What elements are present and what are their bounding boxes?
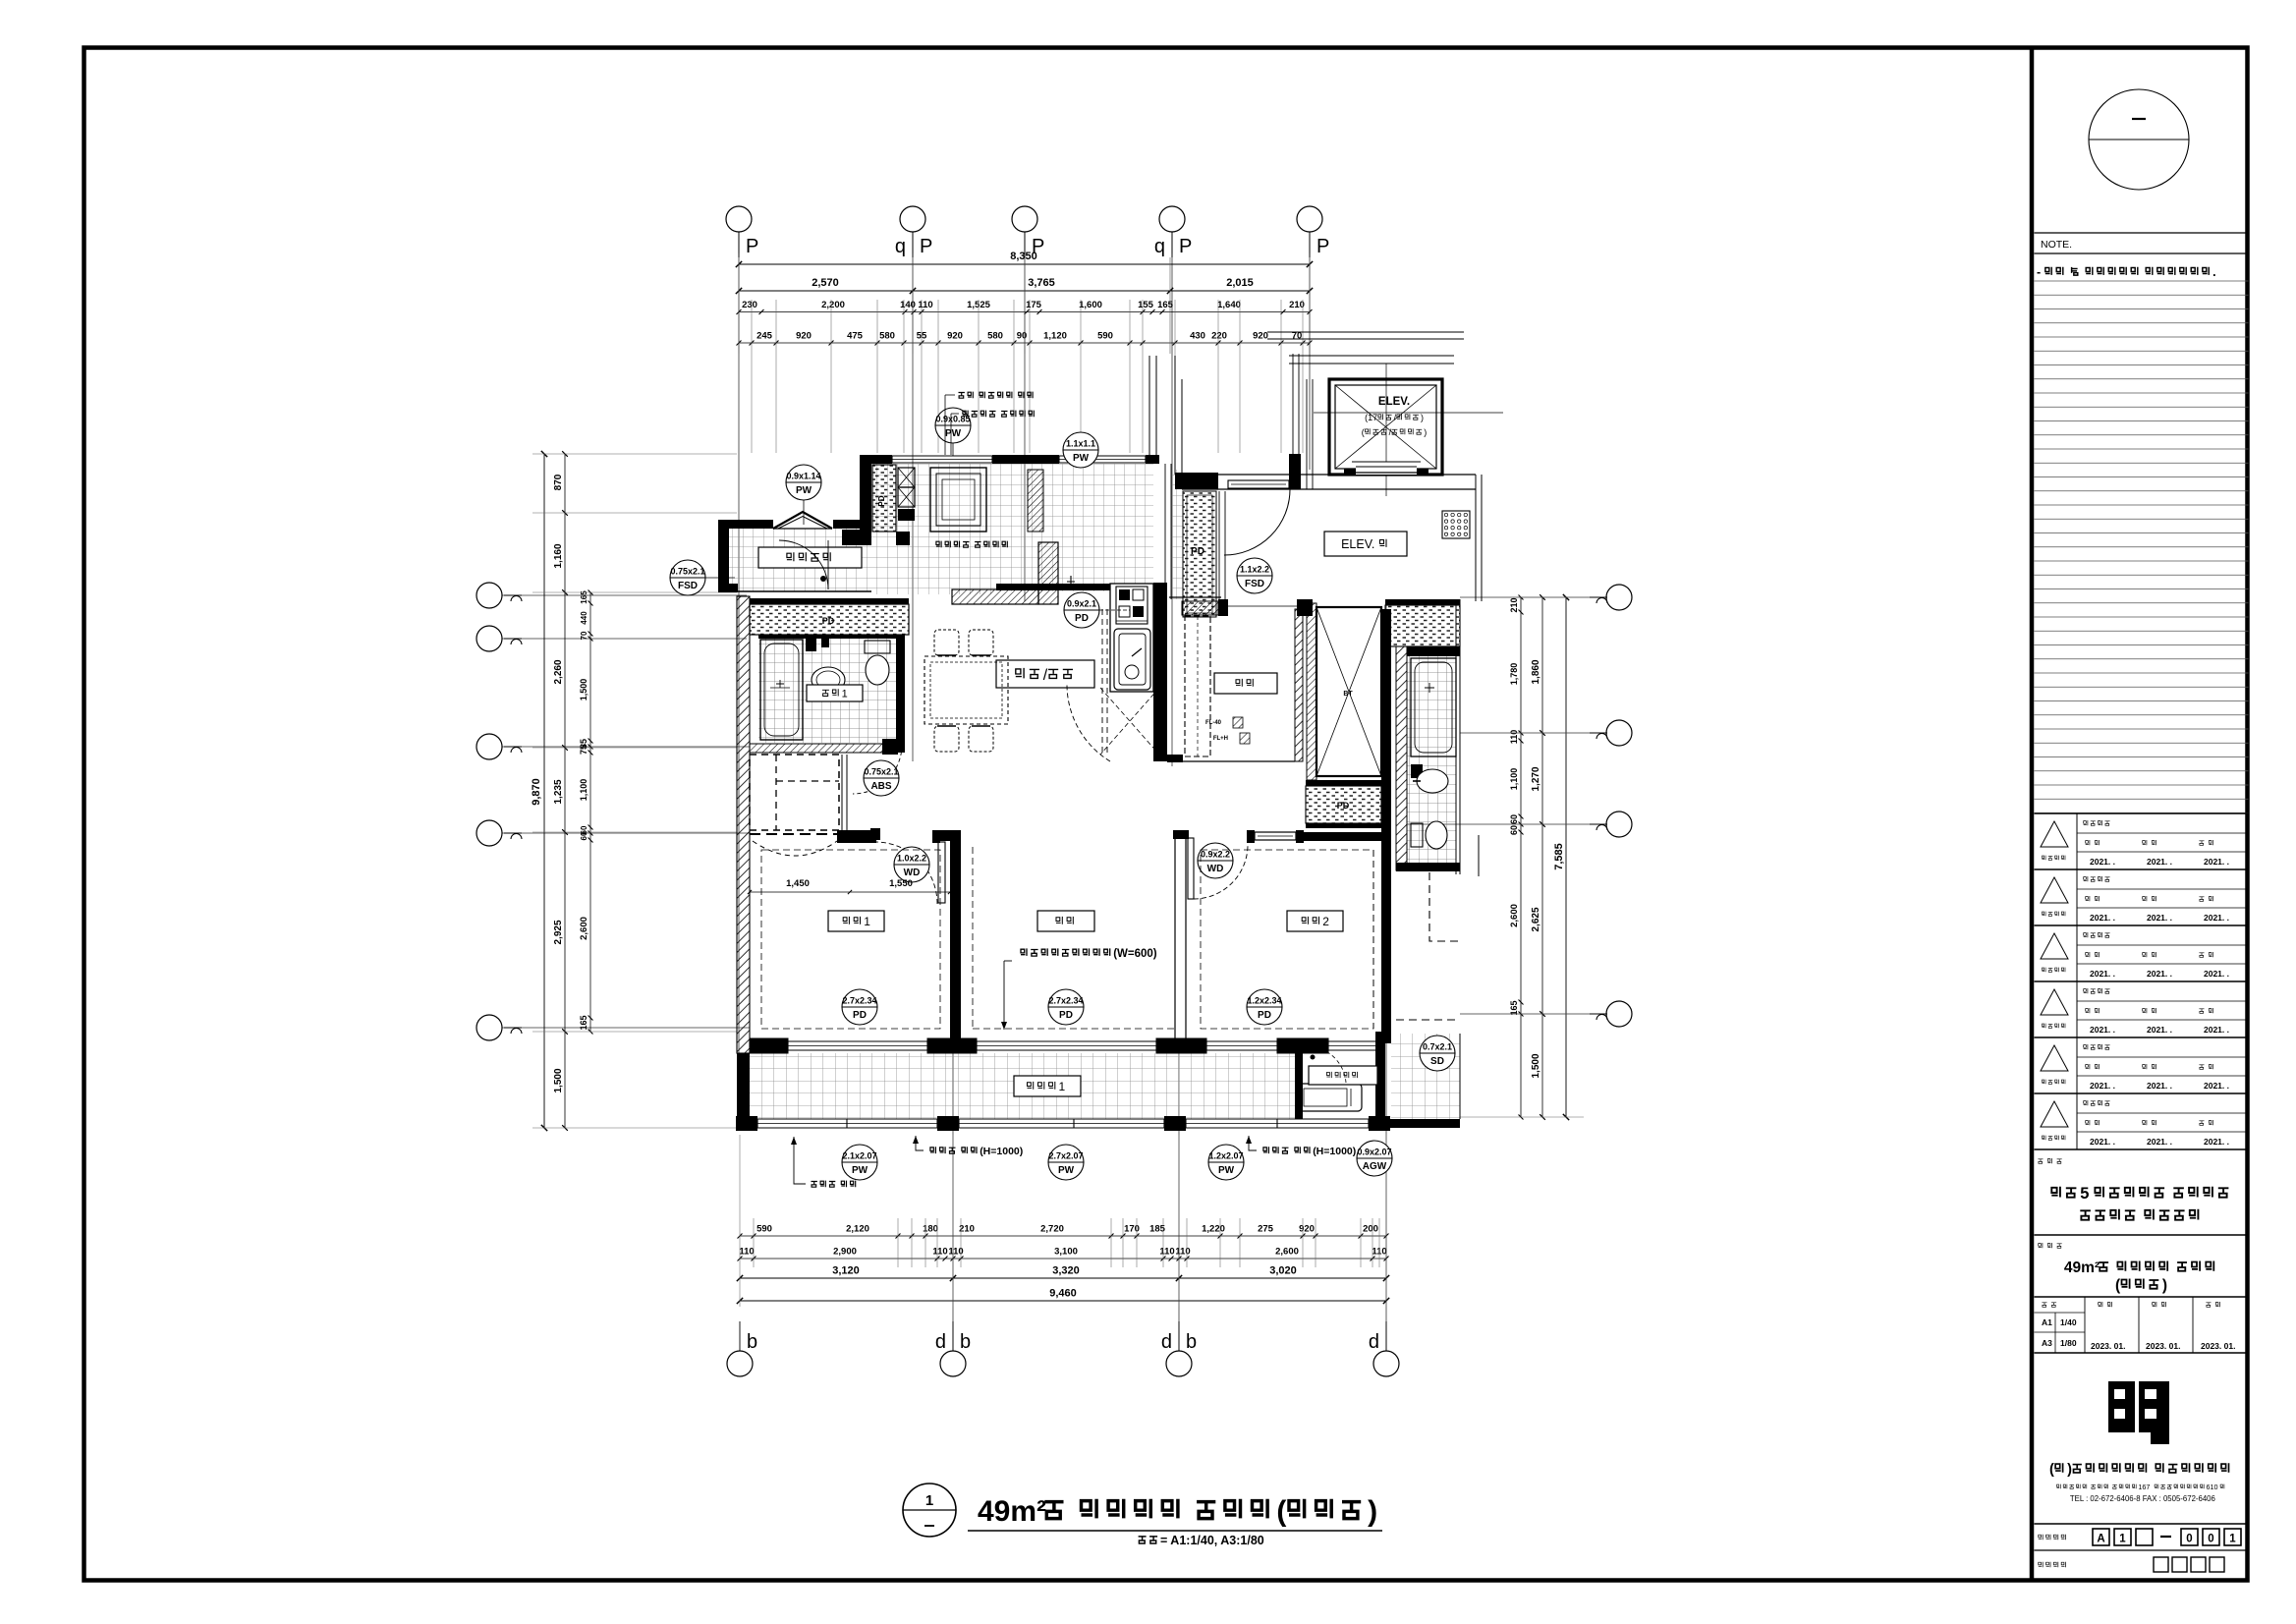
svg-text:920: 920 bbox=[796, 331, 812, 342]
svg-text:P: P bbox=[1179, 236, 1192, 257]
svg-text:0.9x2.2: 0.9x2.2 bbox=[1201, 850, 1230, 860]
svg-text:FSD: FSD bbox=[1245, 579, 1264, 589]
svg-text:(H=1000): (H=1000) bbox=[980, 1146, 1023, 1157]
svg-text:1,235: 1,235 bbox=[553, 779, 564, 804]
svg-text:2021. .: 2021. . bbox=[2204, 1137, 2229, 1147]
svg-text:2.7x2.34: 2.7x2.34 bbox=[1048, 996, 1083, 1006]
svg-text:2,600: 2,600 bbox=[1509, 904, 1520, 927]
svg-text:PW: PW bbox=[945, 428, 962, 439]
svg-text:170: 170 bbox=[1124, 1224, 1140, 1235]
svg-text:1,100: 1,100 bbox=[579, 779, 588, 802]
svg-text:430: 430 bbox=[1190, 331, 1205, 342]
svg-text:3,320: 3,320 bbox=[1052, 1265, 1080, 1277]
svg-text:): ) bbox=[1424, 427, 1427, 437]
svg-text:1,450: 1,450 bbox=[786, 878, 810, 889]
svg-text:FL+H: FL+H bbox=[1213, 736, 1228, 742]
svg-text:1: 1 bbox=[842, 688, 848, 700]
svg-text:1.1x2.2: 1.1x2.2 bbox=[1240, 565, 1269, 575]
svg-text:165: 165 bbox=[1509, 1000, 1519, 1015]
svg-text:1,270: 1,270 bbox=[1531, 766, 1541, 791]
svg-text:1/40: 1/40 bbox=[2060, 1317, 2077, 1327]
svg-text:(: ( bbox=[1362, 427, 1365, 437]
svg-text:3,120: 3,120 bbox=[832, 1265, 860, 1277]
svg-text:2,600: 2,600 bbox=[579, 917, 589, 940]
svg-text:2.7x2.07: 2.7x2.07 bbox=[1048, 1151, 1083, 1161]
svg-text:1.0x2.2: 1.0x2.2 bbox=[897, 854, 926, 864]
svg-text:70: 70 bbox=[580, 631, 588, 640]
svg-text:110: 110 bbox=[1159, 1247, 1174, 1258]
svg-text:2021. .: 2021. . bbox=[2204, 913, 2229, 923]
svg-text:PD: PD bbox=[1337, 801, 1350, 811]
svg-text:= A1:1/40, A3:1/80: = A1:1/40, A3:1/80 bbox=[1160, 1534, 1264, 1547]
svg-text:d: d bbox=[1369, 1331, 1379, 1353]
svg-text:q: q bbox=[1154, 236, 1165, 257]
svg-text:ELEV.: ELEV. bbox=[1341, 537, 1374, 551]
svg-text:WD: WD bbox=[904, 868, 921, 878]
svg-text:2021. .: 2021. . bbox=[2090, 913, 2115, 923]
svg-text:2,900: 2,900 bbox=[833, 1247, 857, 1258]
svg-text:(17: (17 bbox=[1365, 413, 1377, 422]
svg-text:2021. .: 2021. . bbox=[2090, 969, 2115, 979]
svg-text:90: 90 bbox=[1017, 331, 1028, 342]
svg-text:0: 0 bbox=[2186, 1534, 2192, 1545]
svg-text:1,600: 1,600 bbox=[1079, 300, 1102, 310]
svg-text:9,460: 9,460 bbox=[1049, 1288, 1077, 1300]
svg-text:WD: WD bbox=[1207, 864, 1224, 874]
svg-text:1.2x2.34: 1.2x2.34 bbox=[1247, 996, 1281, 1006]
svg-text:PW: PW bbox=[1058, 1165, 1075, 1176]
svg-text:2,570: 2,570 bbox=[812, 277, 839, 289]
svg-text:1.1x1.1: 1.1x1.1 bbox=[1066, 439, 1095, 449]
svg-text:590: 590 bbox=[1097, 331, 1113, 342]
svg-text:1: 1 bbox=[2119, 1534, 2126, 1545]
svg-text:PW: PW bbox=[1073, 453, 1090, 464]
svg-text:-: - bbox=[2037, 265, 2041, 279]
svg-text:440: 440 bbox=[580, 611, 588, 625]
svg-text:PD: PD bbox=[1191, 546, 1204, 557]
svg-text:3,020: 3,020 bbox=[1269, 1265, 1297, 1277]
svg-text:55: 55 bbox=[917, 331, 927, 342]
svg-text:2023. 01.: 2023. 01. bbox=[2201, 1341, 2235, 1351]
svg-text:1/80: 1/80 bbox=[2060, 1338, 2077, 1348]
svg-text:2021. .: 2021. . bbox=[2090, 857, 2115, 867]
svg-text:BT: BT bbox=[1343, 691, 1353, 698]
svg-text:b: b bbox=[1186, 1331, 1197, 1353]
svg-text:): ) bbox=[2067, 1462, 2072, 1478]
svg-text:A3: A3 bbox=[2042, 1338, 2052, 1348]
svg-text:210: 210 bbox=[1289, 300, 1305, 310]
svg-text:2021. .: 2021. . bbox=[2147, 969, 2172, 979]
svg-text:1,640: 1,640 bbox=[1217, 300, 1241, 310]
svg-text:PW: PW bbox=[796, 485, 812, 496]
svg-text:2021. .: 2021. . bbox=[2204, 1081, 2229, 1091]
svg-text:1,120: 1,120 bbox=[1043, 331, 1067, 342]
svg-text:(H=1000): (H=1000) bbox=[1313, 1146, 1356, 1157]
svg-text:60: 60 bbox=[1509, 825, 1519, 835]
svg-text:275: 275 bbox=[1258, 1224, 1274, 1235]
svg-text:TEL : 02-672-6406-8 FAX : 0505: TEL : 02-672-6406-8 FAX : 0505-672-6406 bbox=[2070, 1494, 2215, 1503]
svg-text:8,350: 8,350 bbox=[1010, 251, 1037, 262]
svg-text:60: 60 bbox=[580, 831, 588, 840]
svg-text:1,100: 1,100 bbox=[1509, 768, 1519, 791]
svg-text:2021. .: 2021. . bbox=[2147, 1025, 2172, 1035]
svg-text:P: P bbox=[746, 236, 758, 257]
svg-text:b: b bbox=[747, 1331, 757, 1353]
svg-text:110: 110 bbox=[739, 1247, 754, 1258]
svg-text:NOTE.: NOTE. bbox=[2041, 239, 2072, 251]
svg-text:580: 580 bbox=[987, 331, 1003, 342]
svg-text:1,525: 1,525 bbox=[967, 300, 990, 310]
svg-text:210: 210 bbox=[1509, 597, 1519, 612]
svg-text:220: 220 bbox=[1211, 331, 1227, 342]
svg-text:0.9x2.07: 0.9x2.07 bbox=[1357, 1148, 1391, 1157]
svg-text:2,925: 2,925 bbox=[553, 920, 564, 944]
svg-text:1,550: 1,550 bbox=[889, 878, 913, 889]
svg-text:A1: A1 bbox=[2042, 1317, 2052, 1327]
svg-text:): ) bbox=[1368, 1495, 1377, 1528]
svg-text:0.9x1.14: 0.9x1.14 bbox=[786, 472, 820, 481]
svg-text:2,015: 2,015 bbox=[1226, 277, 1254, 289]
svg-text:(: ( bbox=[2115, 1277, 2121, 1294]
svg-text:2.7x2.34: 2.7x2.34 bbox=[842, 996, 876, 1006]
svg-text:920: 920 bbox=[1299, 1224, 1315, 1235]
svg-text:): ) bbox=[2162, 1277, 2167, 1294]
svg-text:(W=600): (W=600) bbox=[1113, 948, 1157, 960]
svg-text:110: 110 bbox=[1509, 730, 1519, 745]
svg-text:2.1x2.07: 2.1x2.07 bbox=[842, 1151, 876, 1161]
svg-text:ELEV.: ELEV. bbox=[1378, 396, 1410, 408]
svg-text:475: 475 bbox=[847, 331, 864, 342]
svg-text:PD: PD bbox=[1059, 1010, 1073, 1021]
svg-text:2021. .: 2021. . bbox=[2090, 1081, 2115, 1091]
svg-text:.: . bbox=[2212, 265, 2215, 279]
svg-text:d: d bbox=[935, 1331, 946, 1353]
svg-text:1,500: 1,500 bbox=[553, 1068, 564, 1092]
svg-text:3,100: 3,100 bbox=[1054, 1247, 1078, 1258]
svg-text:2,120: 2,120 bbox=[846, 1224, 869, 1235]
svg-text:870: 870 bbox=[553, 474, 564, 490]
svg-text:0: 0 bbox=[2208, 1534, 2213, 1545]
svg-text:PW: PW bbox=[1218, 1165, 1235, 1176]
svg-text:110: 110 bbox=[1175, 1247, 1190, 1258]
svg-text:7,585: 7,585 bbox=[1553, 843, 1565, 870]
svg-text:A: A bbox=[2097, 1534, 2104, 1545]
svg-text:FL-40: FL-40 bbox=[1205, 720, 1222, 726]
svg-text:1,860: 1,860 bbox=[1531, 659, 1541, 684]
svg-text:1.2x2.07: 1.2x2.07 bbox=[1208, 1151, 1243, 1161]
svg-text:1: 1 bbox=[925, 1492, 933, 1509]
svg-text:9,870: 9,870 bbox=[531, 778, 542, 806]
svg-text:P: P bbox=[1316, 236, 1329, 257]
svg-text:175: 175 bbox=[1026, 300, 1042, 310]
svg-text:2,260: 2,260 bbox=[553, 659, 564, 684]
svg-text:0.75x2.1: 0.75x2.1 bbox=[670, 567, 704, 577]
svg-text:140: 140 bbox=[900, 300, 916, 310]
svg-text:2023. 01.: 2023. 01. bbox=[2091, 1341, 2125, 1351]
svg-text:2,625: 2,625 bbox=[1531, 907, 1541, 931]
svg-text:1: 1 bbox=[1059, 1080, 1066, 1093]
svg-text:1,160: 1,160 bbox=[553, 543, 564, 568]
svg-text:(: ( bbox=[1276, 1495, 1286, 1528]
svg-text:2021. .: 2021. . bbox=[2147, 913, 2172, 923]
svg-text:1,220: 1,220 bbox=[1202, 1224, 1225, 1235]
svg-text:2021. .: 2021. . bbox=[2204, 1025, 2229, 1035]
svg-text:1: 1 bbox=[864, 915, 870, 928]
svg-text:210: 210 bbox=[959, 1224, 975, 1235]
svg-text:200: 200 bbox=[1363, 1224, 1378, 1235]
svg-text:2021. .: 2021. . bbox=[2204, 857, 2229, 867]
svg-text:AGW: AGW bbox=[1363, 1161, 1387, 1172]
svg-text:ABS: ABS bbox=[870, 781, 891, 792]
svg-text:1,500: 1,500 bbox=[579, 679, 588, 701]
svg-text:610: 610 bbox=[2207, 1483, 2218, 1491]
svg-text:2021. .: 2021. . bbox=[2090, 1137, 2115, 1147]
svg-text:(: ( bbox=[2049, 1462, 2054, 1478]
svg-text:0.75x2.1: 0.75x2.1 bbox=[864, 767, 898, 777]
svg-text:165: 165 bbox=[1157, 300, 1174, 310]
svg-text:230: 230 bbox=[742, 300, 757, 310]
svg-text:PD: PD bbox=[1075, 613, 1089, 624]
svg-text:167: 167 bbox=[2138, 1483, 2150, 1491]
svg-text:PD: PD bbox=[877, 495, 886, 506]
svg-text:49m²: 49m² bbox=[2064, 1260, 2100, 1276]
svg-text:180: 180 bbox=[923, 1224, 938, 1235]
svg-text:q: q bbox=[895, 236, 906, 257]
svg-text:110: 110 bbox=[932, 1247, 947, 1258]
svg-text:0.7x2.1: 0.7x2.1 bbox=[1423, 1042, 1452, 1052]
svg-text:1,500: 1,500 bbox=[1531, 1053, 1541, 1078]
svg-text:P: P bbox=[920, 236, 932, 257]
svg-text:1,780: 1,780 bbox=[1509, 663, 1519, 686]
svg-text:2023. 01.: 2023. 01. bbox=[2146, 1341, 2180, 1351]
svg-text:2: 2 bbox=[1322, 915, 1329, 928]
svg-text:165: 165 bbox=[579, 1015, 588, 1030]
svg-text:110: 110 bbox=[948, 1247, 963, 1258]
svg-text:/: / bbox=[1043, 667, 1048, 684]
svg-text:0.9x2.1: 0.9x2.1 bbox=[1067, 599, 1096, 609]
svg-text:49m²: 49m² bbox=[978, 1495, 1046, 1528]
svg-text:5: 5 bbox=[2080, 1185, 2089, 1203]
svg-text:2021. .: 2021. . bbox=[2147, 1081, 2172, 1091]
svg-text:2,200: 2,200 bbox=[821, 300, 845, 310]
svg-text:580: 580 bbox=[879, 331, 895, 342]
svg-text:1: 1 bbox=[2229, 1534, 2236, 1545]
svg-text:SD: SD bbox=[1430, 1056, 1444, 1067]
svg-text:PW: PW bbox=[852, 1165, 868, 1176]
svg-text:b: b bbox=[960, 1331, 971, 1353]
svg-text:75: 75 bbox=[579, 745, 588, 755]
svg-text:110: 110 bbox=[918, 300, 932, 310]
svg-text:2021. .: 2021. . bbox=[2090, 1025, 2115, 1035]
svg-text:2,720: 2,720 bbox=[1040, 1224, 1064, 1235]
svg-text:FSD: FSD bbox=[678, 581, 698, 591]
svg-text:): ) bbox=[1421, 413, 1424, 422]
svg-text:2,600: 2,600 bbox=[1275, 1247, 1299, 1258]
svg-text:2021. .: 2021. . bbox=[2147, 1137, 2172, 1147]
svg-text:2021. .: 2021. . bbox=[2204, 969, 2229, 979]
svg-text:2021. .: 2021. . bbox=[2147, 857, 2172, 867]
svg-text:PD: PD bbox=[853, 1010, 867, 1021]
svg-text:3,765: 3,765 bbox=[1028, 277, 1055, 289]
svg-text:920: 920 bbox=[1253, 331, 1268, 342]
svg-text:PD: PD bbox=[1258, 1010, 1271, 1021]
svg-text:d: d bbox=[1161, 1331, 1172, 1353]
svg-text:PD: PD bbox=[822, 616, 835, 626]
svg-text:920: 920 bbox=[947, 331, 963, 342]
svg-text:155: 155 bbox=[1138, 300, 1154, 310]
svg-text:245: 245 bbox=[756, 331, 773, 342]
svg-text:590: 590 bbox=[756, 1224, 772, 1235]
svg-text:60: 60 bbox=[1509, 814, 1519, 824]
